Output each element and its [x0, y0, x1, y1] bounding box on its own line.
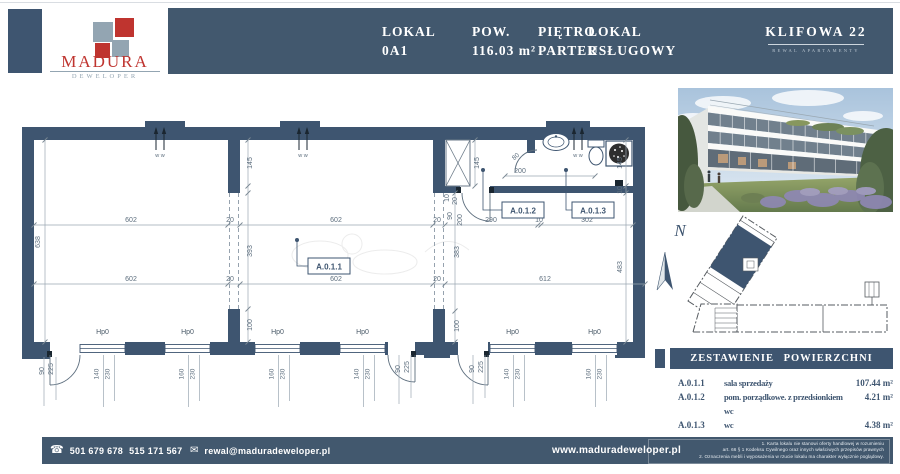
phone-number-2: 515 171 567 [129, 446, 182, 456]
dim-label: 20 [226, 276, 234, 283]
dim-label: 80 [511, 152, 521, 162]
window-dim-label: 230 [365, 368, 372, 379]
dim-label: 290 [485, 217, 497, 224]
legal-disclaimer: 1. Karta lokalu nie stanowi oferty handl… [648, 439, 890, 464]
windows-layer: Hp0140230Hp0160230Hp0160230Hp0140230Hp01… [80, 329, 617, 407]
window-dim-label: 140 [94, 368, 101, 379]
vent-label: w w [297, 153, 308, 159]
dim-label: 602 [330, 217, 342, 224]
project-title: KLIFOWA 22 [761, 24, 871, 40]
project-rule [768, 44, 864, 45]
window-dim-label: 230 [280, 368, 287, 379]
room-tag-label: A.0.1.1 [316, 263, 342, 272]
legal-line: 2. Oznaczenia mebli i wyposażenia w rzuc… [654, 454, 884, 460]
phone-icon: ☎ [50, 437, 64, 464]
phone-group: ☎ 501 679 678 515 171 567 [50, 437, 182, 464]
dim-label: 602 [330, 276, 342, 283]
area-table-rows: A.0.1.1sala sprzedaży107.44 m²A.0.1.2pom… [670, 369, 893, 432]
floor-plan: Hp0140230Hp0160230Hp0160230Hp0140230Hp01… [0, 0, 660, 440]
window-sill-label: Hp0 [506, 329, 519, 336]
email-group: ✉ rewal@maduradeweloper.pl [190, 437, 330, 464]
dim-label: 393 [247, 245, 254, 257]
shaft-hatched [446, 140, 470, 186]
door-openings [50, 186, 490, 355]
dim-label: 200 [457, 214, 464, 226]
area-row-0: A.0.1.1sala sprzedaży107.44 m² [670, 376, 893, 390]
footer-bar: ☎ 501 679 678 515 171 567 ✉ rewal@madura… [42, 437, 893, 464]
dim-label: 145 [617, 157, 624, 169]
area-table-title: ZESTAWIENIE POWIERZCHNI [670, 348, 893, 369]
toilet-icon [588, 140, 604, 165]
dim-label: 383 [454, 246, 461, 258]
table-accent-square [655, 349, 665, 368]
building-footprint [688, 216, 887, 332]
window-dim-label: 140 [504, 368, 511, 379]
window-sill-label: Hp0 [271, 329, 284, 336]
dim-label: 20 [452, 197, 459, 205]
window-dim-label: 160 [586, 368, 593, 379]
site-plan: N [655, 212, 895, 345]
dim-label: 225 [48, 363, 55, 375]
dimension-ticks [32, 138, 648, 345]
window-sill-label: Hp0 [181, 329, 194, 336]
room-tag-label: A.0.1.3 [580, 207, 606, 216]
dim-label: 145 [247, 157, 254, 169]
dim-label: 612 [539, 276, 551, 283]
email-icon: ✉ [190, 437, 198, 464]
dim-label: 90 [395, 365, 402, 373]
area-row-2: A.0.1.3wc4.38 m² [670, 418, 893, 432]
dim-label: 225 [478, 361, 485, 373]
window-dim-label: 230 [515, 368, 522, 379]
window-dim-label: 160 [269, 368, 276, 379]
dim-label: 145 [474, 157, 481, 169]
dim-label: 602 [125, 276, 137, 283]
vent-label: w w [154, 153, 165, 159]
north-arrow-icon [657, 252, 673, 290]
dim-label: 638 [35, 236, 42, 248]
window-dim-label: 140 [354, 368, 361, 379]
room-id: A.0.1.3 [678, 418, 712, 432]
dim-label: 90 [39, 367, 46, 375]
dim-label: 483 [617, 261, 624, 273]
room-tag-label: A.0.1.2 [510, 207, 536, 216]
area-table: ZESTAWIENIE POWIERZCHNI A.0.1.1sala sprz… [670, 348, 893, 432]
sink-icon [543, 134, 569, 151]
dim-label: 20 [226, 217, 234, 224]
dim-label: 200 [514, 168, 526, 175]
dim-label: 225 [404, 361, 411, 373]
phone-number-1: 501 679 678 [70, 446, 123, 456]
dim-label: 602 [125, 217, 137, 224]
walls [22, 121, 645, 359]
area-row-1: A.0.1.2pom. porządkowe. z przedsionkiem … [670, 390, 893, 418]
dim-label: 100 [454, 320, 461, 332]
email-address: rewal@maduradeweloper.pl [204, 446, 330, 456]
room-area: 4.38 m² [843, 418, 893, 432]
dim-label: 100 [247, 319, 254, 331]
dim-label: 90 [469, 365, 476, 373]
window-dim-label: 160 [179, 368, 186, 379]
room-id: A.0.1.2 [678, 390, 712, 418]
window-sill-label: Hp0 [96, 329, 109, 336]
dim-label: 10 [444, 194, 451, 202]
window-dim-label: 230 [597, 368, 604, 379]
window-sill-label: Hp0 [356, 329, 369, 336]
dim-label: 90 [447, 212, 454, 220]
window-dim-label: 230 [105, 368, 112, 379]
room-name: wc [724, 418, 843, 432]
north-label: N [673, 221, 687, 240]
project-block: KLIFOWA 22 REWAL APARTAMENTY [761, 24, 871, 53]
dim-label: 20 [433, 276, 441, 283]
dim-label: 20 [433, 217, 441, 224]
vent-label: w w [572, 153, 583, 159]
window-sill-label: Hp0 [588, 329, 601, 336]
building-render [678, 88, 893, 212]
room-area: 4.21 m² [843, 390, 893, 418]
room-name: pom. porządkowe. z przedsionkiem wc [724, 390, 843, 418]
dashed-wall-lines [230, 193, 444, 309]
room-area: 107.44 m² [843, 376, 893, 390]
dim-label: 10 [617, 186, 624, 194]
window-dim-label: 230 [190, 368, 197, 379]
project-subtitle: REWAL APARTAMENTY [761, 48, 871, 53]
room-name: sala sprzedaży [724, 376, 843, 390]
room-id: A.0.1.1 [678, 376, 712, 390]
